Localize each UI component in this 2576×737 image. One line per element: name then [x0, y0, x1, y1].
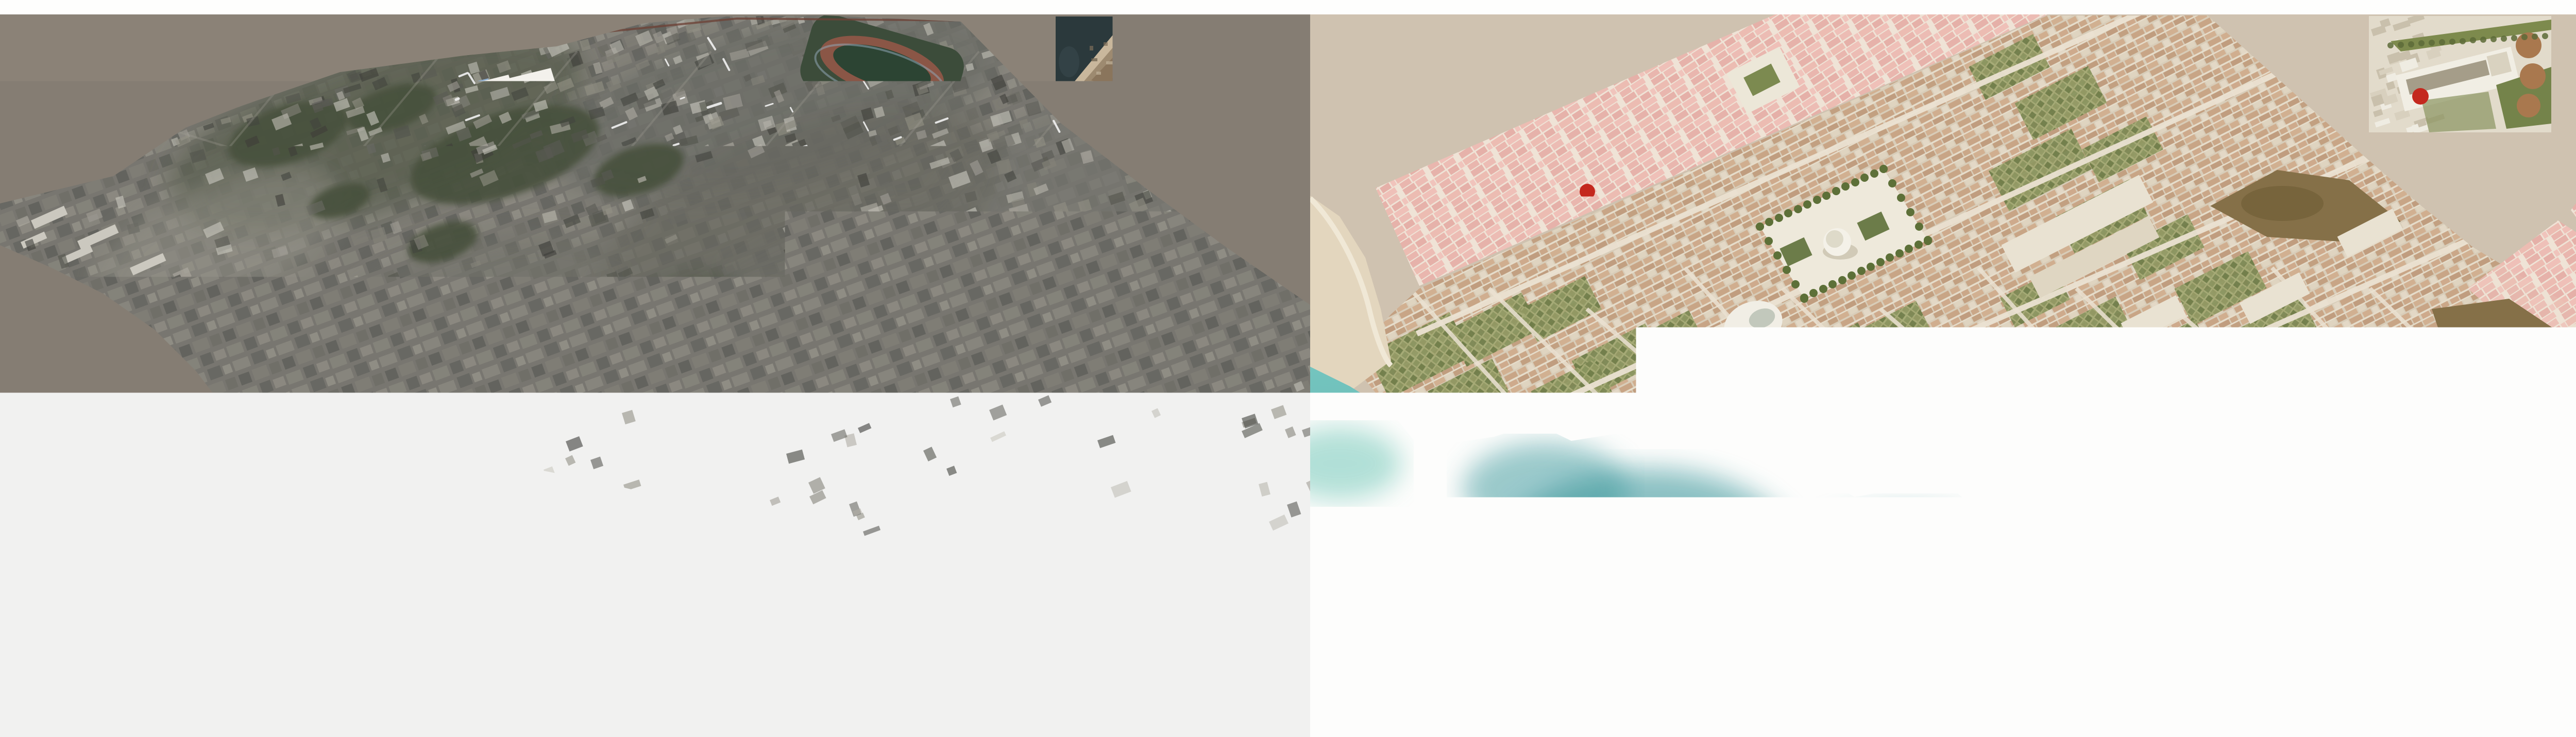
svg-text:19.: 19. — [948, 496, 1005, 554]
svg-text:18.: 18. — [1159, 74, 1224, 131]
svg-text:10.: 10. — [209, 253, 266, 311]
svg-text:5.: 5. — [472, 447, 505, 504]
svg-text:7.: 7. — [661, 650, 694, 708]
svg-text:13.: 13. — [697, 342, 753, 400]
svg-text:2.: 2. — [65, 392, 98, 450]
svg-text:15.: 15. — [1053, 288, 1110, 345]
svg-text:12.: 12. — [686, 277, 742, 334]
svg-text:3.: 3. — [200, 417, 233, 474]
svg-text:8.: 8. — [773, 656, 807, 713]
svg-text:1.: 1. — [15, 506, 49, 563]
svg-text:11.: 11. — [211, 146, 266, 203]
svg-text:14.: 14. — [771, 391, 828, 448]
svg-text:17..: 17.. — [1150, 267, 1217, 324]
svg-text:9.: 9. — [724, 433, 757, 490]
svg-text:4.: 4. — [283, 318, 316, 375]
svg-text:16.: 16. — [1209, 422, 1265, 479]
svg-text:6.: 6. — [518, 597, 552, 654]
